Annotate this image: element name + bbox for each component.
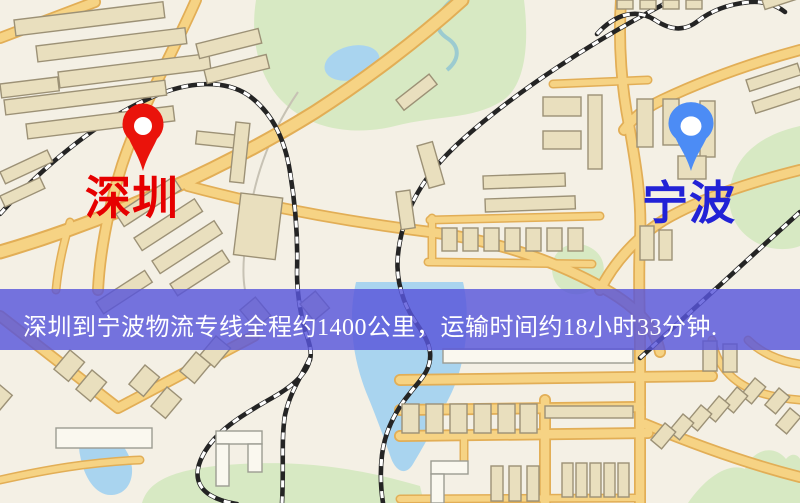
info-banner: 深圳到宁波物流专线全程约1400公里，运输时间约18小时33分钟. xyxy=(0,289,800,350)
map-screenshot: 深圳 宁波 深圳到宁波物流专线全程约1400公里，运输时间约18小时33分钟. xyxy=(0,0,800,503)
map-canvas xyxy=(0,0,800,503)
shenzhen-label: 深圳 xyxy=(85,176,179,222)
banner-text: 深圳到宁波物流专线全程约1400公里，运输时间约18小时33分钟. xyxy=(23,307,718,342)
ningbo-label: 宁波 xyxy=(642,181,736,227)
